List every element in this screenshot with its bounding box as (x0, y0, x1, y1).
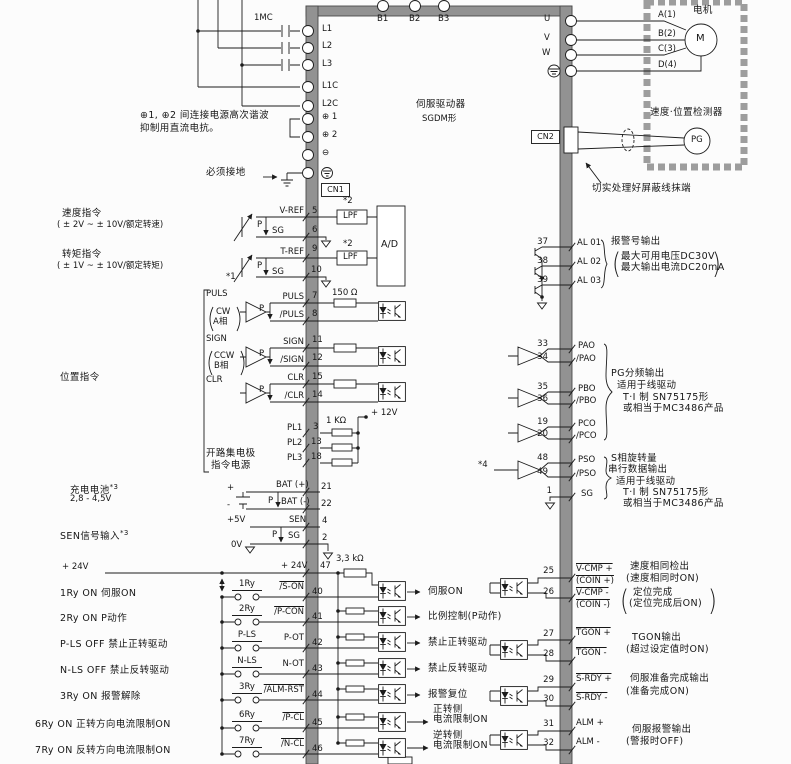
pin-27: 27 (536, 630, 554, 640)
tgon-note-1: TGON输出 (632, 633, 681, 644)
power-input-wires (196, 0, 302, 186)
pin-33: 33 (532, 340, 548, 350)
rail-24v: + 24V (281, 562, 307, 572)
func-fwd-limit-2: 电流限制ON (433, 715, 488, 726)
sig-ncl: /N-CL (246, 740, 304, 750)
pin-32: 32 (536, 739, 554, 749)
lpf-2: LPF (343, 253, 358, 263)
p-mark-4: P (259, 350, 264, 360)
puls-group-title: PULS (206, 290, 227, 300)
sig-al03: AL 03 (577, 277, 601, 287)
ext-label-ncl: 7Ry ON 反转方向电流限制ON (35, 746, 171, 757)
pin-34: 34 (532, 353, 548, 363)
pin-39: 39 (532, 276, 548, 286)
pin-12: 12 (312, 354, 323, 364)
terminal-l1c: L1C (322, 82, 338, 92)
pin-13: 13 (311, 438, 322, 448)
lpf-1: LPF (343, 212, 358, 222)
sig-vref: V-REF (266, 207, 304, 217)
srdy-note-2: (准备完成ON) (626, 687, 689, 698)
p-mark-2: P (257, 262, 262, 272)
pin-18: 18 (311, 453, 322, 463)
terminal-w: W (542, 49, 550, 59)
star2-a: *2 (343, 197, 353, 207)
terminals (303, 1, 577, 179)
pin-19: 19 (532, 418, 548, 428)
sig-pso: PSO (578, 456, 595, 466)
sig-puls: PULS (276, 293, 304, 303)
pe-symbol-right (548, 65, 560, 77)
sig-sg10: SG (272, 268, 284, 278)
pin-14: 14 (312, 391, 323, 401)
clr-group-title: CLR (206, 376, 223, 386)
servo-wiring-diagram: 1MC L1 L2 L3 L1C L2C ⊕ 1 ⊕ 2 ⊖ ⊕1, ⊕2 间连… (0, 0, 791, 764)
terminal-dc-plus1: ⊕ 1 (322, 113, 337, 123)
driver-title: 伺服驱动器 (416, 100, 466, 111)
sig-pcl: /P-CL (246, 714, 304, 724)
sign-phase-b: B相 (214, 362, 228, 372)
driver-model: SGDM形 (422, 115, 456, 125)
sig-npso: /PSO (576, 470, 596, 480)
cn2-label: CN2 (531, 130, 560, 144)
star4: *4 (478, 461, 488, 471)
detector-label: 速度·位置检测器 (650, 108, 723, 119)
func-alarm-reset: 报警复位 (428, 690, 468, 701)
sign-group-title: SIGN (206, 335, 227, 345)
sig-al01: AL 01 (577, 239, 601, 249)
vcmp-note-1: 速度相同检出 (630, 562, 689, 573)
pin-1: 1 (536, 487, 552, 497)
torque-cmd-title: 转矩指令 (62, 250, 102, 261)
pin-22: 22 (321, 500, 332, 510)
pin-41: 41 (312, 613, 323, 623)
phase-c: C(3) (658, 45, 676, 55)
position-cmd-title: 位置指令 (60, 373, 100, 384)
pin-30: 30 (536, 695, 554, 705)
sig-pot: P-OT (246, 634, 304, 644)
sig-tgon-minus: TGON - (576, 649, 607, 659)
serial-note-2: 串行数据输出 (608, 465, 667, 476)
pin-21: 21 (321, 483, 332, 493)
pin-43: 43 (312, 665, 323, 675)
sig-pl2: PL2 (287, 439, 302, 449)
motor-label: 电机 (693, 6, 713, 17)
pin-4: 4 (322, 517, 327, 527)
paren-close-1: ) (712, 248, 721, 281)
sig-sign: SIGN (276, 338, 304, 348)
pin-3: 3 (313, 423, 318, 433)
pin-11: 11 (312, 336, 323, 346)
sig-tref: T-REF (266, 248, 304, 258)
sig-bat-plus: BAT (+) (276, 481, 309, 491)
resistor-33k: 3,3 kΩ (336, 555, 364, 565)
pin-8: 8 (312, 310, 317, 320)
sig-vcmp-plus: V-CMP + (576, 565, 613, 575)
srdy-note-1: 伺服准备完成输出 (630, 674, 709, 685)
ext-label-son: 1Ry ON 伺服ON (60, 589, 136, 600)
alm-note-1: 伺服报警输出 (632, 725, 691, 736)
terminal-l2c: L2C (322, 100, 338, 110)
battery-plus: + (227, 484, 234, 494)
pg-label: PG (691, 136, 703, 146)
pin-46: 46 (312, 745, 323, 755)
terminal-dc-plus2: ⊕ 2 (322, 131, 337, 141)
sig-clr: CLR (276, 374, 304, 384)
pin-6: 6 (312, 226, 317, 236)
alm-note-2: (警报时OFF) (626, 737, 684, 748)
sig-npao: /PAO (576, 355, 596, 365)
pin-37: 37 (532, 238, 548, 248)
pg-note-1: PG分频输出 (611, 369, 665, 380)
pin-49: 49 (532, 468, 548, 478)
sig-pco: PCO (578, 420, 596, 430)
sig-vcmp-minus: V-CMP - (576, 589, 609, 599)
resistor-150: 150 Ω (332, 289, 357, 299)
sig-alm-minus: ALM - (576, 738, 600, 748)
ad-converter: A/D (381, 240, 398, 251)
pin-42: 42 (312, 639, 323, 649)
shield-note: 切实处理好屏蔽线抹端 (592, 184, 691, 195)
resistor-1k: 1 KΩ (326, 417, 346, 427)
pin-38: 38 (532, 257, 548, 267)
pin-31: 31 (536, 720, 554, 730)
func-fwd-prohibit: 禁止正转驱动 (428, 638, 487, 649)
pg-note-2: 适用于线驱动 (617, 381, 676, 392)
p-mark-5: P (259, 386, 264, 396)
phase-a: A(1) (658, 11, 676, 21)
alarm-note-3: 最大输出电流DC20mA (621, 263, 725, 274)
pin-2: 2 (322, 534, 327, 544)
p-mark-1: P (257, 221, 262, 231)
ext-label-pcl: 6Ry ON 正转方向电流限制ON (35, 720, 171, 731)
serial-note-5: 或相当于MC3486产品 (623, 499, 724, 510)
sig-tgon-plus: TGON + (576, 629, 611, 639)
ground-note: 必须接地 (206, 168, 246, 179)
oc-label-1: 开路集电极 (206, 449, 256, 460)
sig-alm-plus: ALM + (576, 719, 604, 729)
sig-srdy-plus: S-RDY + (576, 675, 611, 685)
pin-40: 40 (312, 588, 323, 598)
terminal-u: U (544, 15, 550, 25)
p-mark-7: P (272, 531, 277, 541)
terminal-l3: L3 (322, 60, 332, 70)
pin-44: 44 (312, 691, 323, 701)
rail-5v: +5V (227, 516, 245, 526)
pin-29: 29 (536, 676, 554, 686)
puls-phase-a: A相 (213, 318, 227, 328)
vcmp-note-2: (速度相同时ON) (626, 574, 699, 585)
sig-pl1: PL1 (287, 424, 302, 434)
sig-npuls: /PULS (270, 311, 304, 321)
pin-7: 7 (312, 292, 317, 302)
func-rev-prohibit: 禁止反转驱动 (428, 664, 487, 675)
ext-label-not: N-LS OFF 禁止反转驱动 (60, 666, 169, 677)
paren-close-2: ) (708, 585, 717, 618)
paren-open-1: ( (612, 248, 621, 281)
ext-24v: + 24V (62, 563, 88, 573)
phase-b: B(2) (658, 30, 676, 40)
paren-open-2: ( (620, 585, 629, 618)
cn1-label: CN1 (321, 183, 350, 197)
pin-25: 25 (536, 567, 554, 577)
terminal-l1: L1 (322, 25, 332, 35)
pe-symbol-left (322, 168, 333, 179)
sig-npbo: /PBO (576, 397, 596, 407)
reactor-note-1: ⊕1, ⊕2 间连接电源高次谐波 (140, 111, 269, 122)
func-rev-limit-2: 电流限制ON (433, 741, 488, 752)
sig-sen: SEN (289, 516, 306, 526)
sig-srdy-minus: S-RDY - (576, 694, 607, 704)
sig-pl3: PL3 (287, 454, 302, 464)
p-mark-3: P (259, 305, 264, 315)
pin-35: 35 (532, 383, 548, 393)
torque-cmd-range: ( ± 1V ~ ± 10V/额定转矩) (57, 262, 163, 272)
contactor-label: 1MC (254, 14, 273, 24)
terminal-b2: B2 (409, 15, 420, 25)
star2-b: *2 (343, 240, 353, 250)
pin-48: 48 (532, 454, 548, 464)
pin-9: 9 (312, 245, 317, 255)
pin-26: 26 (536, 588, 554, 598)
pin-10: 10 (311, 266, 322, 276)
pin-15: 15 (312, 373, 323, 383)
sig-bat-minus: BAT (-) (281, 498, 310, 508)
sig-al02: AL 02 (577, 258, 601, 268)
sig-coin-minus: (COIN -) (576, 601, 610, 611)
sig-nclr: /CLR (270, 392, 304, 402)
func-servo-on: 伺服ON (428, 587, 463, 598)
battery-range: 2,8 - 4,5V (70, 495, 111, 505)
sig-almrst: /ALM-RST (246, 686, 304, 696)
rail-12v: + 12V (371, 409, 397, 419)
speed-cmd-title: 速度指令 (62, 209, 102, 220)
phase-d: D(4) (658, 61, 677, 71)
sig-sg6: SG (272, 227, 284, 237)
pin-45: 45 (312, 719, 323, 729)
alarm-note: 报警号输出 (611, 237, 661, 248)
pin-36: 36 (532, 395, 548, 405)
terminal-b3: B3 (438, 15, 449, 25)
sen-label: SEN信号输入*3 (60, 529, 129, 543)
sig-son: /S-ON (246, 583, 304, 593)
star1: *1 (226, 273, 236, 283)
speed-cmd-range: ( ± 2V ~ ± 10V/额定转速) (57, 221, 163, 231)
sig-pao: PAO (578, 342, 595, 352)
oc-label-2: 指令电源 (211, 461, 251, 472)
pin-5: 5 (312, 207, 317, 217)
ext-label-pot: P-LS OFF 禁止正转驱动 (60, 640, 168, 651)
sig-sg2: SG (288, 532, 300, 542)
tgon-note-2: (超过设定值时ON) (626, 645, 709, 656)
terminal-b1: B1 (377, 15, 388, 25)
motor-m: M (696, 33, 705, 45)
pg-note-4: 或相当于MC3486产品 (623, 404, 724, 415)
reactor-note-2: 抑制用直流电抗。 (140, 124, 219, 135)
cn2-connector (564, 127, 578, 153)
pin-20: 20 (532, 430, 548, 440)
sig-nsign: /SIGN (270, 356, 304, 366)
sig-pcon: /P-CON (246, 608, 304, 618)
pin-47: 47 (320, 562, 331, 572)
p-mark-6: P (268, 497, 273, 507)
vcmp-note-4: (定位完成后ON) (629, 599, 702, 610)
terminal-dc-minus: ⊖ (322, 149, 329, 159)
func-p-control: 比例控制(P动作) (428, 612, 502, 623)
rail-0v: 0V (231, 541, 242, 551)
sig-not: N-OT (246, 660, 304, 670)
sig-coin-plus: (COIN +) (576, 577, 614, 587)
pulse-input-wires (204, 290, 405, 472)
battery-minus: - (227, 501, 230, 511)
terminal-l2: L2 (322, 42, 332, 52)
ext-label-pcon: 2Ry ON P动作 (60, 614, 127, 625)
sig-pbo: PBO (578, 385, 596, 395)
sig-sg1: SG (581, 490, 593, 500)
pin-28: 28 (536, 650, 554, 660)
ext-label-almrst: 3Ry ON 报警解除 (60, 692, 141, 703)
terminal-v: V (544, 34, 550, 44)
sig-npco: /PCO (576, 432, 597, 442)
